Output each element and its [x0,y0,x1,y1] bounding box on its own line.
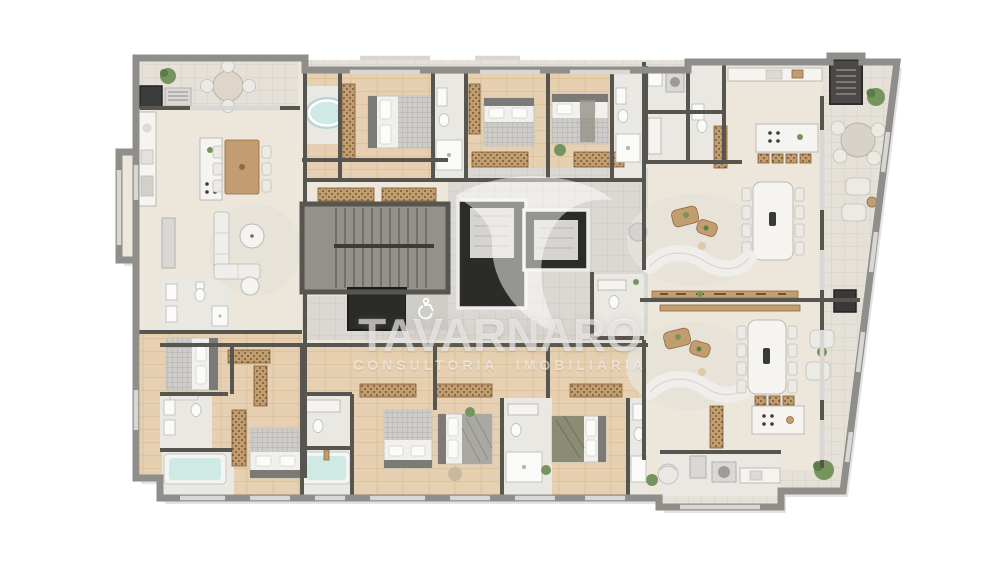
double-bed-3 [552,94,608,144]
dining-table-wood [213,140,271,194]
floor-plan-render: TAVARNARO CONSULTORIA IMOBILIÁRIA [0,0,1000,562]
kitchen-counter-left [138,112,156,206]
tv-console [162,218,175,268]
staircase [302,204,448,292]
wardrobe [360,384,416,397]
wardrobe [570,384,622,397]
plant [541,465,551,475]
kitchen-island-top-right [756,124,818,163]
plant [160,68,176,84]
kitchen-counter-top [728,68,822,81]
plant [646,474,658,486]
double-bed-5 [250,428,304,478]
watermark-subtitle: CONSULTORIA IMOBILIÁRIA [0,357,1000,373]
side-table-round [241,277,259,295]
double-bed-6 [384,410,432,468]
wardrobe [382,188,436,201]
armchair [658,464,678,484]
wardrobe [436,384,492,397]
barbecue-area [140,86,191,108]
wardrobe [318,188,374,201]
stair-rail [334,244,434,248]
wardrobe [232,410,246,466]
wardrobe [342,84,355,160]
bathtub-2 [302,450,350,484]
double-bed-7 [438,414,492,464]
wardrobe [472,152,528,167]
double-bed-2 [484,98,534,146]
floor-plan-canvas [0,0,1000,562]
plant [697,291,703,297]
pouf [448,467,462,481]
bathtub-1 [164,454,226,484]
plant [465,407,475,417]
double-bed-1 [368,96,434,148]
wardrobe [469,84,480,134]
double-bed-8 [552,416,606,462]
watermark-title: TAVARNARO [0,308,1000,362]
tall-cabinet [710,406,723,448]
plant [554,144,566,156]
